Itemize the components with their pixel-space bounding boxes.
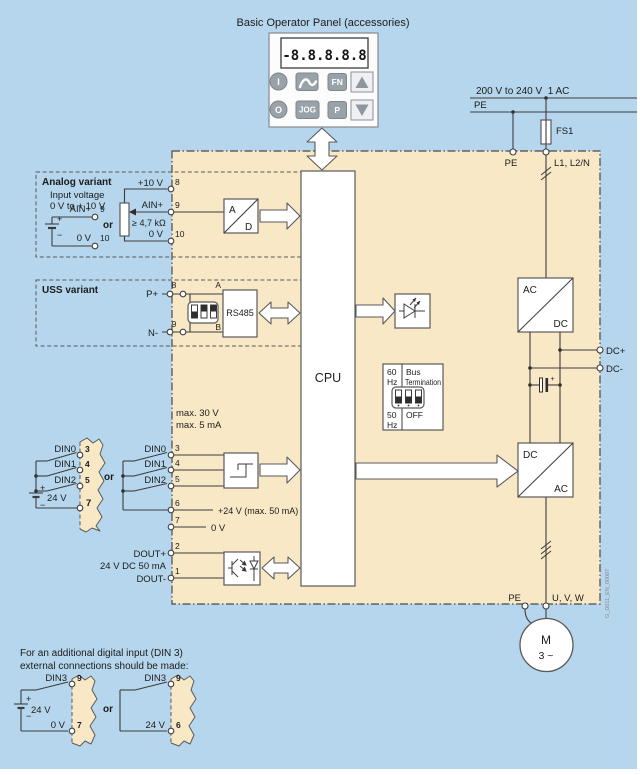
bus-term-dip-switch[interactable] xyxy=(392,387,424,408)
din3-label: DIN3 xyxy=(45,673,67,684)
terminal-4 xyxy=(77,467,83,473)
pin-9: 9 xyxy=(176,673,181,683)
internal-0v-label: 0 V xyxy=(211,523,226,534)
motor-phase-label: 3 ~ xyxy=(539,650,554,662)
pin-9: 9 xyxy=(77,673,82,683)
n-pin: 9 xyxy=(172,319,177,329)
terminal-3 xyxy=(168,452,174,458)
dc-plus-terminal xyxy=(597,347,603,353)
freq-50-unit: Hz xyxy=(387,420,397,430)
dc-minus-label: DC- xyxy=(606,364,623,375)
off-button-label: O xyxy=(275,105,282,115)
rectifier-in-label: AC xyxy=(523,285,537,296)
din2-label: DIN2 xyxy=(144,475,166,486)
fn-button-label: FN xyxy=(332,77,343,87)
pin-2: 2 xyxy=(175,541,180,551)
terminal-8 xyxy=(168,186,174,192)
inverter-out-label: AC xyxy=(554,484,568,495)
dout-plus-label: DOUT+ xyxy=(134,549,167,560)
on-button[interactable]: I xyxy=(270,73,287,90)
din0-label: DIN0 xyxy=(54,444,76,455)
pe-terminal-label: PE xyxy=(505,158,518,169)
pin-1: 1 xyxy=(175,566,180,576)
decrease-button[interactable] xyxy=(351,100,373,120)
dip-toggle-1-state xyxy=(192,312,198,319)
fn-button[interactable]: FN xyxy=(328,74,347,91)
rs485-label: RS485 xyxy=(226,308,254,318)
jog-button-label: JOG xyxy=(299,106,316,115)
24v-label: 24 V xyxy=(145,720,165,731)
pin-5: 5 xyxy=(175,474,180,484)
note-line-2: external connections should be made: xyxy=(20,661,188,672)
n-label: N- xyxy=(148,328,158,339)
pin-9: 9 xyxy=(175,200,180,210)
din0-label: DIN0 xyxy=(144,444,166,455)
ad-d-label: D xyxy=(245,222,252,233)
pin-7: 7 xyxy=(77,720,82,730)
terminal-7 xyxy=(69,728,75,734)
page-edge-bottom xyxy=(0,769,640,775)
pin-6: 6 xyxy=(176,720,181,730)
din2-label: DIN2 xyxy=(54,475,76,486)
terminal-2 xyxy=(168,550,174,556)
terminal-6 xyxy=(168,728,174,734)
uvw-terminal xyxy=(543,603,549,609)
dip-toggle-3-state xyxy=(416,397,422,404)
pe-out-label: PE xyxy=(508,593,521,604)
terminal-6 xyxy=(168,507,174,513)
uvw-label: U, V, W xyxy=(552,593,584,604)
cap-plus-sign: + xyxy=(551,376,555,383)
0v-src-pin: 10 xyxy=(100,233,110,243)
terminal-1 xyxy=(168,575,174,581)
p-button[interactable]: P xyxy=(328,102,347,119)
0v-label: 0 V xyxy=(51,720,66,731)
ad-a-label: A xyxy=(229,205,236,216)
din1-label: DIN1 xyxy=(144,459,166,470)
wiring-diagram: 200 V to 240 V 1 AC PE FS1 PE L1, L2/N A… xyxy=(0,0,640,775)
pe-out-terminal xyxy=(522,603,528,609)
inverter-in-label: DC xyxy=(523,450,537,461)
din-or-label: or xyxy=(104,472,114,483)
pin-10: 10 xyxy=(175,229,185,239)
document-id-watermark: G_D011_EN_00007 xyxy=(605,569,611,618)
increase-button[interactable] xyxy=(351,72,373,92)
supply-rating-label: 200 V to 240 V 1 AC xyxy=(476,86,569,97)
dip-toggle-1-state xyxy=(396,397,402,404)
terminal-9 xyxy=(168,681,174,687)
analog-variant-title: Analog variant xyxy=(42,177,112,188)
wire-a-label: A xyxy=(215,280,221,290)
pin-4: 4 xyxy=(175,458,180,468)
terminal-5 xyxy=(77,483,83,489)
display-value: -8.8.8.8.8 xyxy=(282,48,366,64)
p-terminal xyxy=(167,291,173,297)
uss-dip-switch[interactable] xyxy=(188,302,218,323)
p-pin: 8 xyxy=(172,280,177,290)
dip-toggle-2-state xyxy=(406,397,412,404)
wire-b-label: B xyxy=(215,322,221,332)
function-hand-button[interactable] xyxy=(296,73,318,91)
dc-minus-terminal xyxy=(597,365,603,371)
cpu-label: CPU xyxy=(315,371,341,385)
battery-plus-sign: + xyxy=(57,214,62,224)
p-button-label: P xyxy=(334,105,340,115)
off-label: OFF xyxy=(406,410,423,420)
terminal-7 xyxy=(168,524,174,530)
uss-variant-title: USS variant xyxy=(42,285,99,296)
bus-termination-section: 60 Hz Bus Termination 50 Hz OFF xyxy=(383,364,443,430)
pin-5: 5 xyxy=(85,475,90,485)
terminal-7 xyxy=(77,505,83,511)
freq-60-unit: Hz xyxy=(387,377,397,387)
analog-note-1: Input voltage xyxy=(50,190,104,201)
dout-rating-label: 24 V DC 50 mA xyxy=(100,561,167,572)
analog-or-label: or xyxy=(103,220,113,231)
cpu-section: CPU xyxy=(301,171,355,586)
pin-7: 7 xyxy=(86,498,91,509)
jog-button[interactable]: JOG xyxy=(296,101,319,119)
0v-src-label: 0 V xyxy=(77,233,92,244)
dc-plus-label: DC+ xyxy=(606,346,626,357)
pe-terminal xyxy=(510,149,516,155)
motor-m-label: M xyxy=(541,633,551,647)
line-terminal xyxy=(543,149,549,155)
pot-ain-label: AIN+ xyxy=(142,200,164,211)
pot-0v-label: 0 V xyxy=(149,229,164,240)
pin-3: 3 xyxy=(175,443,180,453)
dip-toggle-2-state xyxy=(201,305,207,312)
panel-title: Basic Operator Panel (accessories) xyxy=(236,17,409,29)
terminal-5 xyxy=(168,483,174,489)
din1-label: DIN1 xyxy=(54,459,76,470)
din3-label: DIN3 xyxy=(144,673,166,684)
bus-label: Bus xyxy=(406,367,421,377)
ain-src-label: AIN+ xyxy=(70,204,92,215)
note-line-1: For an additional digital input (DIN 3) xyxy=(20,648,183,659)
din3-or-label: or xyxy=(103,704,113,715)
pin-6: 6 xyxy=(175,498,180,508)
off-button[interactable]: O xyxy=(270,101,287,118)
p-label: P+ xyxy=(146,289,158,300)
potentiometer-symbol xyxy=(120,203,129,236)
rectifier-out-label: DC xyxy=(554,319,568,330)
minus-sign: − xyxy=(40,500,45,510)
freq-60: 60 xyxy=(387,367,397,377)
max-current-label: max. 5 mA xyxy=(176,420,222,431)
fuse-label: FS1 xyxy=(556,126,573,137)
n-terminal xyxy=(167,329,173,335)
freq-50: 50 xyxy=(387,410,397,420)
pin-8: 8 xyxy=(175,177,180,187)
0v-src-terminal xyxy=(92,243,98,249)
schmitt-trigger-box xyxy=(224,453,258,488)
dip-toggle-3-state xyxy=(211,305,217,312)
dout-minus-label: DOUT- xyxy=(136,574,166,585)
pin-7: 7 xyxy=(175,515,180,525)
terminal-9 xyxy=(69,681,75,687)
plus-sign: + xyxy=(26,694,31,704)
terminal-9 xyxy=(168,209,174,215)
pot-resistance-label: ≥ 4,7 kΩ xyxy=(132,218,166,228)
ain-src-pin: 9 xyxy=(100,204,105,214)
internal-24v-label: +24 V (max. 50 mA) xyxy=(218,506,298,516)
supply-pe-label: PE xyxy=(474,100,487,111)
line-terminal-label: L1, L2/N xyxy=(554,158,590,169)
max-voltage-label: max. 30 V xyxy=(176,408,219,419)
on-button-label: I xyxy=(277,77,280,87)
terminal-4 xyxy=(168,467,174,473)
pin-4: 4 xyxy=(85,459,90,469)
terminal-10 xyxy=(168,238,174,244)
battery-voltage: 24 V xyxy=(47,493,67,504)
terminal-3 xyxy=(77,452,83,458)
battery-minus-sign: − xyxy=(57,230,62,240)
ain-src-terminal xyxy=(92,214,98,220)
pin-3: 3 xyxy=(85,444,90,454)
termination-label: Termination xyxy=(405,377,441,387)
pot-10v-label: +10 V xyxy=(138,178,164,189)
battery-voltage: 24 V xyxy=(31,705,51,716)
p-plug xyxy=(180,291,186,297)
n-plug xyxy=(180,329,186,335)
